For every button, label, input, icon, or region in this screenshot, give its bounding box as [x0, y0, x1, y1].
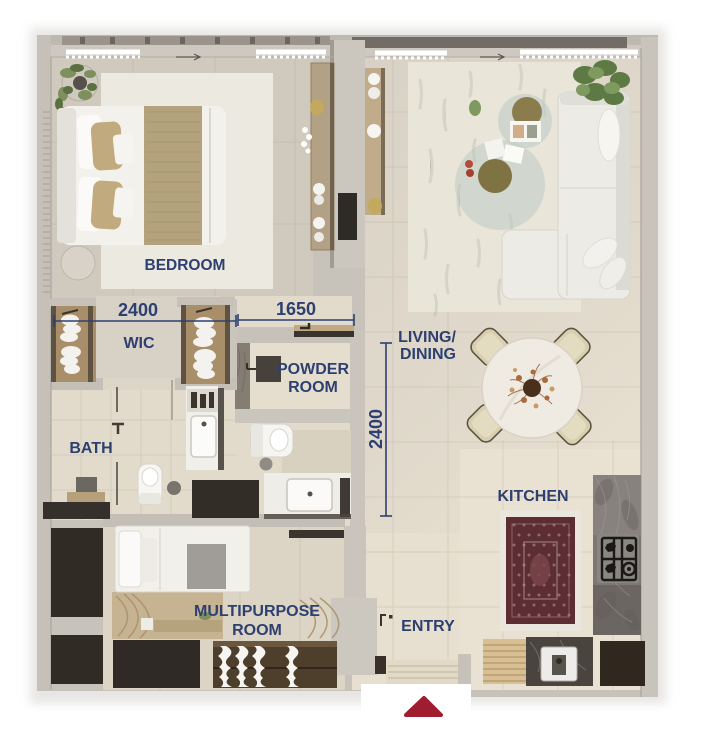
svg-text:DINING: DINING	[400, 346, 456, 363]
svg-text:BATH: BATH	[69, 440, 112, 457]
svg-text:ENTRY: ENTRY	[401, 618, 455, 635]
svg-text:LIVING/: LIVING/	[398, 329, 456, 346]
svg-text:POWDER: POWDER	[277, 361, 349, 378]
svg-text:MULTIPURPOSE: MULTIPURPOSE	[194, 603, 320, 620]
svg-text:KITCHEN: KITCHEN	[497, 488, 568, 505]
svg-text:ROOM: ROOM	[288, 379, 338, 396]
svg-text:2400: 2400	[366, 409, 386, 449]
svg-text:ROOM: ROOM	[232, 622, 282, 639]
svg-text:1650: 1650	[276, 299, 316, 319]
svg-text:WIC: WIC	[123, 335, 155, 352]
svg-text:BEDROOM: BEDROOM	[145, 257, 226, 274]
svg-text:2400: 2400	[118, 300, 158, 320]
